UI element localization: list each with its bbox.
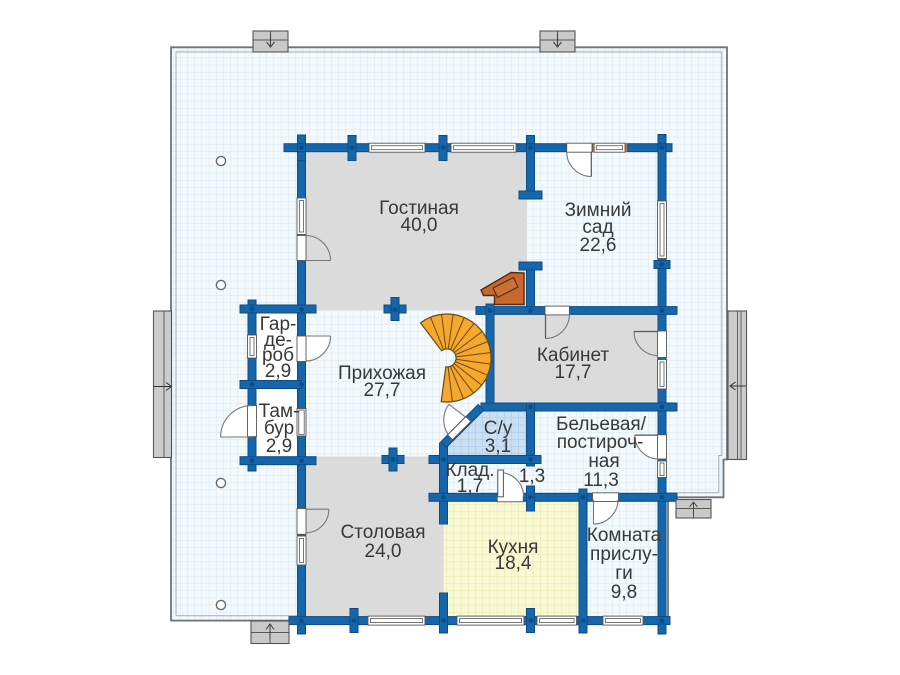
svg-text:постироч-: постироч-	[557, 432, 644, 453]
svg-text:ги: ги	[615, 563, 633, 584]
svg-text:40,0: 40,0	[401, 215, 438, 236]
svg-text:2,9: 2,9	[266, 436, 292, 457]
svg-text:27,7: 27,7	[364, 380, 401, 401]
svg-text:ная: ная	[588, 451, 619, 472]
svg-text:11,3: 11,3	[583, 470, 619, 491]
svg-text:1,7: 1,7	[457, 476, 483, 497]
svg-text:Комната: Комната	[587, 525, 662, 546]
svg-text:1,3: 1,3	[519, 466, 545, 487]
svg-text:22,6: 22,6	[580, 235, 617, 256]
svg-text:Столовая: Столовая	[341, 522, 426, 543]
svg-text:прислу-: прислу-	[590, 544, 658, 565]
svg-text:24,0: 24,0	[365, 541, 402, 562]
svg-text:17,7: 17,7	[555, 362, 592, 383]
svg-text:3,1: 3,1	[485, 436, 511, 457]
svg-text:2,9: 2,9	[265, 361, 291, 382]
svg-text:9,8: 9,8	[611, 582, 637, 603]
svg-text:18,4: 18,4	[495, 553, 532, 574]
